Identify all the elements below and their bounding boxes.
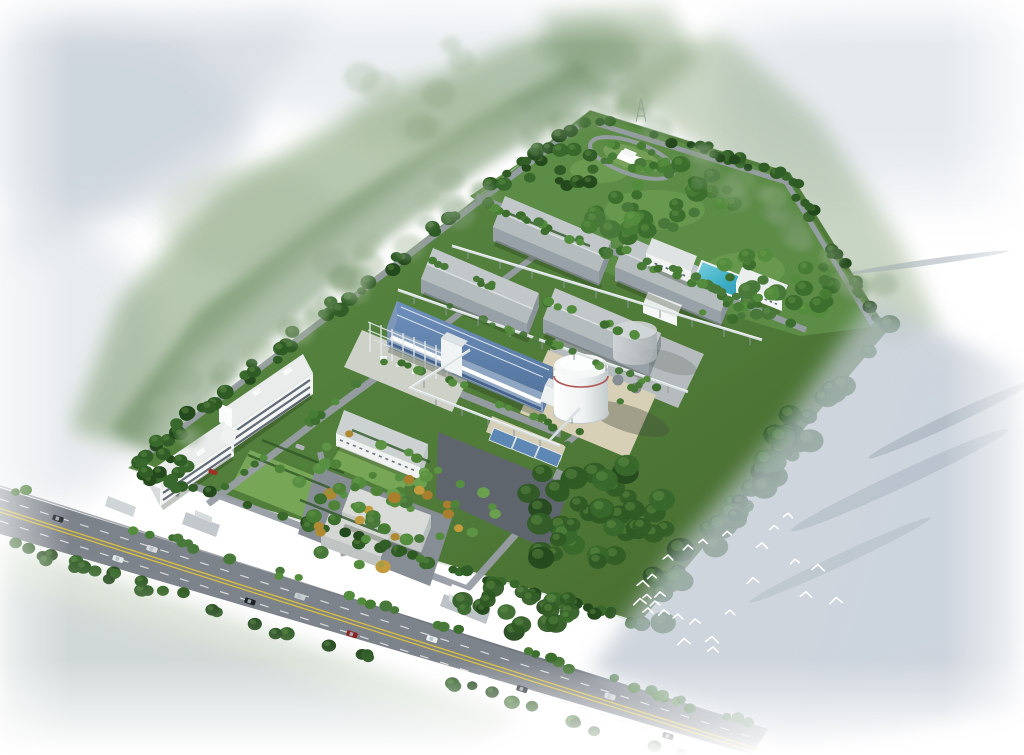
tree — [478, 315, 488, 323]
tree — [631, 190, 642, 199]
tree — [181, 427, 203, 446]
tree — [448, 566, 457, 574]
tree — [606, 140, 615, 148]
tree-highlight — [741, 250, 748, 256]
tree — [369, 472, 377, 479]
tree — [242, 338, 274, 366]
tree — [717, 288, 726, 296]
tree-highlight — [590, 207, 596, 212]
tree — [697, 279, 708, 289]
tree — [171, 367, 202, 393]
tree — [759, 163, 770, 173]
tree — [394, 234, 426, 261]
tree-highlight — [219, 386, 227, 392]
tree-highlight — [544, 604, 552, 611]
tree-highlight — [588, 213, 596, 220]
tree — [354, 560, 365, 569]
tree-highlight — [610, 192, 617, 198]
tree-highlight — [590, 609, 596, 614]
tree-highlight — [672, 210, 679, 216]
tree-highlight — [562, 594, 569, 600]
tree-highlight — [137, 577, 143, 582]
tree — [661, 158, 671, 166]
tree — [608, 152, 617, 160]
tree — [576, 239, 584, 246]
tree — [438, 622, 450, 632]
tree — [732, 293, 741, 300]
tree-highlight — [671, 200, 677, 205]
tree-highlight — [205, 487, 211, 492]
tree — [489, 509, 500, 519]
tree — [150, 394, 175, 415]
tree — [328, 500, 340, 510]
tree — [786, 228, 813, 251]
tree — [422, 79, 456, 108]
tree-highlight — [594, 501, 604, 510]
tree-highlight — [569, 144, 576, 150]
tree — [616, 98, 642, 120]
tree — [404, 448, 413, 456]
tree-highlight — [766, 289, 773, 295]
tree-highlight — [635, 520, 644, 527]
tree — [433, 165, 464, 191]
tree — [820, 246, 846, 268]
tree — [166, 474, 179, 485]
tree — [275, 464, 285, 473]
tree-highlight — [367, 516, 374, 522]
tree — [839, 277, 869, 303]
tree — [564, 441, 571, 447]
tree-highlight — [607, 520, 617, 528]
tree-highlight — [486, 581, 496, 589]
tree — [524, 173, 536, 183]
tree — [251, 460, 259, 467]
tree — [629, 330, 639, 338]
tree — [469, 183, 497, 207]
tree — [414, 188, 442, 212]
tree — [447, 303, 454, 309]
tree — [274, 572, 283, 580]
tree-highlight — [716, 199, 723, 204]
tree — [145, 531, 155, 539]
tree — [635, 165, 643, 172]
tree — [648, 149, 656, 156]
tree — [110, 569, 121, 578]
tree-highlight — [71, 556, 78, 562]
tree — [753, 294, 763, 303]
tree — [314, 493, 327, 504]
fade-left — [0, 0, 70, 755]
tree-highlight — [549, 482, 560, 491]
tree — [688, 208, 699, 218]
tree — [273, 356, 283, 364]
tree — [723, 301, 730, 307]
tree — [564, 235, 575, 244]
tree — [568, 348, 576, 355]
tree — [819, 289, 831, 300]
tree — [502, 170, 511, 178]
tree-highlight — [500, 606, 508, 613]
tree — [330, 459, 341, 469]
tree — [613, 326, 624, 335]
tree — [615, 367, 623, 374]
tree-highlight — [151, 436, 158, 442]
tree — [467, 528, 478, 538]
tree-highlight — [532, 500, 543, 509]
tree — [654, 265, 663, 273]
tree — [365, 600, 376, 610]
tree — [695, 146, 711, 160]
tree — [378, 523, 391, 534]
tree-highlight — [626, 213, 634, 220]
tree-highlight — [378, 562, 385, 568]
aerial-rendering-canvas: Aerial bird's-eye architectural renderin… — [0, 0, 1024, 755]
tree-highlight — [760, 250, 767, 256]
tree-highlight — [517, 587, 524, 593]
tree — [532, 336, 539, 342]
tree-highlight — [562, 612, 569, 618]
tree — [414, 486, 425, 495]
tree — [361, 535, 371, 543]
tree-highlight — [295, 477, 301, 482]
tree — [379, 540, 391, 550]
tree-highlight — [567, 519, 574, 525]
tree — [738, 312, 746, 319]
tree — [775, 167, 787, 177]
tree — [414, 534, 424, 543]
tree — [603, 248, 613, 257]
tree — [322, 443, 332, 451]
tree — [357, 597, 366, 605]
tree — [443, 509, 454, 519]
tree — [350, 483, 359, 491]
tree — [652, 383, 661, 391]
tree — [489, 322, 496, 328]
tree — [626, 370, 634, 377]
tree — [448, 49, 476, 73]
tree — [785, 319, 796, 328]
tree — [380, 359, 388, 366]
tree — [461, 565, 474, 576]
tree-highlight — [812, 298, 821, 305]
tree-highlight — [140, 451, 147, 457]
tree — [602, 54, 625, 73]
tree — [524, 647, 533, 655]
tree-highlight — [583, 221, 590, 227]
tree-highlight — [324, 641, 331, 646]
tree — [221, 483, 230, 490]
tree — [576, 428, 584, 435]
tree — [733, 303, 744, 312]
tree — [404, 114, 438, 143]
tree — [434, 467, 442, 474]
tree-highlight — [653, 491, 665, 501]
tree — [541, 228, 550, 235]
tree — [328, 266, 357, 291]
tree-highlight — [326, 489, 332, 494]
tree-highlight — [763, 308, 770, 314]
tree-highlight — [402, 535, 408, 540]
tree — [637, 142, 647, 150]
tree — [379, 601, 392, 612]
tree-highlight — [421, 472, 427, 477]
tree — [729, 155, 741, 165]
tree — [504, 325, 512, 332]
tree — [543, 297, 554, 306]
tree — [554, 303, 562, 310]
tree — [371, 485, 384, 496]
tree — [404, 475, 415, 484]
tree — [727, 314, 739, 324]
tree — [450, 500, 460, 508]
tree — [567, 305, 577, 314]
tree-highlight — [316, 547, 323, 553]
tree — [411, 453, 422, 463]
tree-highlight — [249, 367, 255, 372]
tree — [725, 273, 735, 281]
tree-highlight — [625, 502, 635, 511]
tree — [240, 469, 248, 476]
tree — [448, 379, 457, 387]
tree — [750, 309, 763, 320]
tree — [460, 381, 468, 388]
tree-highlight — [535, 466, 544, 474]
tree — [210, 361, 238, 385]
tree — [545, 339, 553, 346]
tree — [397, 359, 406, 366]
tree — [440, 199, 475, 229]
tree-highlight — [798, 282, 806, 289]
tree — [692, 162, 723, 189]
tree-highlight — [572, 498, 580, 505]
tree — [360, 70, 398, 102]
tree — [672, 271, 682, 279]
tree — [519, 331, 527, 338]
tree-highlight — [788, 297, 796, 304]
tree — [600, 158, 608, 165]
tree-highlight — [584, 177, 591, 183]
tree — [667, 222, 678, 232]
tree — [505, 103, 526, 121]
tree — [283, 318, 314, 345]
tree-highlight — [565, 469, 577, 479]
tree — [300, 461, 309, 469]
tree-highlight — [182, 407, 189, 413]
tree — [345, 430, 353, 437]
tree-highlight — [304, 522, 310, 527]
tree — [395, 473, 405, 481]
tree — [417, 214, 435, 230]
tree-highlight — [315, 464, 321, 469]
tree-highlight — [524, 592, 531, 598]
tree — [173, 534, 184, 543]
tree — [529, 413, 538, 421]
tree — [428, 257, 437, 265]
tree — [391, 533, 400, 541]
tree — [587, 165, 598, 174]
tree — [617, 398, 624, 404]
tree — [454, 524, 463, 532]
tree-highlight — [401, 497, 407, 502]
tree — [793, 179, 804, 188]
tree — [477, 487, 490, 498]
fade-top — [0, 0, 1024, 45]
tree — [351, 379, 361, 388]
tree — [295, 574, 303, 581]
tree — [600, 320, 610, 329]
tree — [804, 203, 813, 211]
tree-highlight — [158, 449, 165, 455]
tree — [505, 405, 512, 411]
tree — [413, 366, 423, 375]
tree — [495, 401, 504, 408]
tree-highlight — [482, 595, 489, 601]
tree-highlight — [250, 619, 256, 624]
tree-highlight — [585, 150, 592, 156]
tree-highlight — [552, 534, 559, 540]
tree — [791, 194, 800, 202]
tree — [870, 272, 898, 296]
tree-highlight — [514, 618, 523, 626]
tree — [416, 555, 425, 563]
tree — [260, 455, 268, 462]
tree — [548, 99, 582, 128]
tree — [170, 418, 183, 429]
tree — [665, 138, 677, 148]
tree — [605, 609, 616, 618]
tree — [361, 649, 373, 659]
tree — [308, 410, 318, 418]
tree — [621, 246, 631, 255]
tree — [594, 362, 604, 370]
tree — [305, 303, 328, 323]
tree-highlight — [618, 457, 629, 467]
tree-highlight — [308, 511, 315, 517]
forest-mottle-1 — [160, 165, 340, 275]
tree — [643, 376, 650, 382]
tree — [554, 165, 566, 175]
tree-highlight — [204, 402, 211, 408]
tree-highlight — [641, 224, 649, 231]
tree-highlight — [532, 549, 544, 559]
tree — [707, 283, 718, 292]
tree — [819, 275, 831, 286]
tree — [128, 526, 138, 535]
tree-highlight — [499, 179, 506, 185]
tree-highlight — [547, 594, 557, 602]
tree — [355, 516, 365, 525]
tree-highlight — [596, 471, 608, 481]
tree-highlight — [554, 145, 561, 151]
tree — [436, 532, 445, 540]
tree — [177, 587, 190, 598]
tree-highlight — [330, 515, 336, 520]
fade-right — [944, 0, 1024, 755]
tree — [554, 341, 564, 349]
rendering-svg — [0, 0, 1024, 755]
tree — [649, 162, 658, 170]
tree — [396, 546, 407, 556]
fade-bottom — [0, 660, 1024, 755]
tree — [388, 492, 401, 503]
tree-highlight — [275, 343, 282, 349]
clarifier-basin-1 — [613, 375, 624, 386]
tree-highlight — [782, 407, 792, 416]
tree-highlight — [163, 435, 170, 441]
tree — [223, 554, 236, 565]
tree — [622, 202, 634, 212]
tree — [533, 217, 544, 226]
tree — [331, 398, 339, 405]
tree — [277, 511, 288, 520]
tree-highlight — [741, 284, 750, 291]
tree-highlight — [388, 264, 395, 270]
tree — [641, 116, 672, 143]
tree — [339, 528, 351, 538]
tree — [548, 424, 557, 432]
tree-highlight — [521, 486, 531, 495]
tree — [315, 528, 325, 537]
tree — [243, 501, 252, 509]
tree-highlight — [354, 478, 361, 484]
tree — [477, 281, 485, 287]
tree — [453, 625, 464, 634]
tree — [344, 591, 355, 600]
tree-highlight — [335, 484, 341, 489]
tree-highlight — [591, 555, 599, 562]
tree — [456, 480, 465, 488]
tree — [522, 157, 532, 165]
tree-highlight — [603, 222, 613, 230]
tree — [643, 258, 652, 266]
tree — [523, 218, 531, 224]
tree — [753, 184, 773, 201]
tree — [188, 484, 198, 492]
tree — [630, 386, 638, 393]
tree-highlight — [282, 628, 289, 634]
tree-highlight — [354, 503, 360, 508]
tree-highlight — [531, 515, 543, 525]
tree — [491, 204, 501, 212]
tree-highlight — [800, 263, 807, 269]
tree-highlight — [155, 467, 161, 472]
tree — [632, 180, 644, 190]
tree — [375, 440, 387, 450]
tree — [487, 283, 495, 290]
tree-highlight — [455, 594, 464, 602]
tree-highlight — [207, 605, 213, 610]
tree-highlight — [674, 158, 683, 165]
tree-highlight — [141, 467, 148, 473]
tree — [356, 231, 382, 253]
tree-highlight — [459, 604, 465, 609]
tree — [555, 177, 564, 184]
tree-highlight — [548, 616, 558, 624]
tree — [699, 309, 706, 315]
tree-highlight — [719, 259, 726, 265]
tree-highlight — [176, 456, 182, 461]
